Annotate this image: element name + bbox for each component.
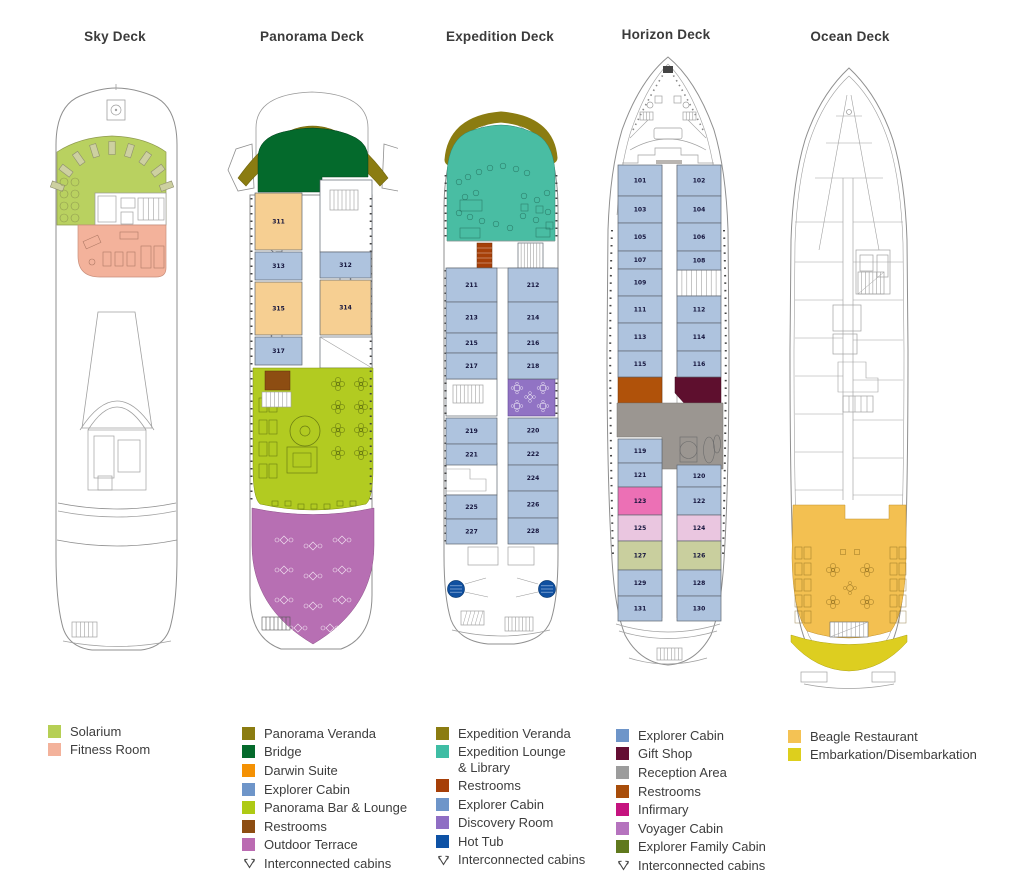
legend-item-bridge: Bridge bbox=[242, 743, 407, 762]
svg-text:120: 120 bbox=[693, 473, 706, 480]
sky-deck-plan bbox=[48, 84, 182, 660]
svg-text:127: 127 bbox=[634, 553, 647, 560]
legend-item-interconnected-cabins: Interconnected cabins bbox=[616, 856, 766, 875]
legend-swatch bbox=[48, 725, 61, 738]
svg-text:112: 112 bbox=[693, 307, 706, 314]
svg-text:108: 108 bbox=[693, 258, 706, 265]
cabin-107: 107 bbox=[618, 251, 662, 269]
cabin-111: 111 bbox=[618, 296, 662, 323]
ocean-deck-plan bbox=[784, 60, 916, 690]
legend-label: Voyager Cabin bbox=[638, 821, 723, 836]
svg-text:115: 115 bbox=[634, 361, 647, 368]
deck-title-panorama: Panorama Deck bbox=[226, 29, 398, 44]
svg-text:109: 109 bbox=[634, 280, 647, 287]
legend-item-restrooms: Restrooms bbox=[436, 776, 585, 795]
legend-label: Infirmary bbox=[638, 802, 689, 817]
svg-text:130: 130 bbox=[693, 606, 706, 613]
expedition-deck-plan: 2112132152172192212252272122142162182202… bbox=[438, 108, 562, 650]
cabin-115: 115 bbox=[618, 351, 662, 377]
cabin-221: 221 bbox=[446, 444, 497, 465]
sky-deck bbox=[50, 84, 177, 650]
svg-text:216: 216 bbox=[527, 340, 540, 347]
cabin-315: 315 bbox=[255, 282, 302, 335]
legend-item-discovery-room: Discovery Room bbox=[436, 813, 585, 832]
legend-swatch bbox=[242, 783, 255, 796]
cabin-219: 219 bbox=[446, 418, 497, 444]
legend-label: Hot Tub bbox=[458, 834, 504, 849]
svg-text:213: 213 bbox=[465, 315, 478, 322]
legend-swatch bbox=[616, 785, 629, 798]
cabin-217: 217 bbox=[446, 353, 497, 379]
cabin-102: 102 bbox=[677, 165, 721, 196]
region-gift-shop bbox=[675, 377, 721, 403]
svg-text:105: 105 bbox=[634, 234, 647, 241]
cabin-130: 130 bbox=[677, 596, 721, 621]
cabin-215: 215 bbox=[446, 333, 497, 353]
cabin-226: 226 bbox=[508, 491, 558, 518]
cabin-312: 312 bbox=[320, 252, 371, 278]
legend-swatch bbox=[436, 745, 449, 758]
cabin-211: 211 bbox=[446, 268, 497, 302]
legend-label: Expedition Veranda bbox=[458, 726, 571, 741]
cabin-108: 108 bbox=[677, 251, 721, 270]
svg-text:215: 215 bbox=[465, 340, 478, 347]
legend-swatch bbox=[616, 803, 629, 816]
cabin-104: 104 bbox=[677, 196, 721, 223]
legend-label: Embarkation/Disembarkation bbox=[810, 747, 977, 762]
legend-item-solarium: Solarium bbox=[48, 722, 150, 741]
legend-label: Restrooms bbox=[264, 819, 327, 834]
ocean-deck bbox=[790, 68, 908, 689]
legend-swatch bbox=[616, 729, 629, 742]
legend-swatch bbox=[242, 820, 255, 833]
legend-swatch bbox=[436, 779, 449, 792]
region-discovery-room bbox=[508, 379, 555, 416]
cabin-129: 129 bbox=[618, 570, 662, 596]
svg-text:122: 122 bbox=[693, 498, 706, 505]
panorama-deck-plan: 311313315317312314 bbox=[226, 86, 398, 660]
legend-swatch bbox=[788, 730, 801, 743]
deck-plan-canvas: Sky Deck Panorama Deck Expedition Deck H… bbox=[0, 0, 1018, 889]
svg-text:224: 224 bbox=[527, 475, 540, 482]
cabin-311: 311 bbox=[255, 193, 302, 250]
legend-item-infirmary: Infirmary bbox=[616, 800, 766, 819]
legend-sky-deck: SolariumFitness Room bbox=[48, 722, 150, 759]
svg-text:106: 106 bbox=[693, 234, 706, 241]
svg-text:218: 218 bbox=[527, 363, 540, 370]
cabin-225: 225 bbox=[446, 495, 497, 519]
legend-swatch bbox=[48, 743, 61, 756]
svg-text:103: 103 bbox=[634, 207, 647, 214]
svg-text:313: 313 bbox=[272, 263, 285, 270]
svg-text:129: 129 bbox=[634, 580, 647, 587]
cabin-313: 313 bbox=[255, 252, 302, 280]
svg-text:228: 228 bbox=[527, 528, 540, 535]
legend-label: Explorer Family Cabin bbox=[638, 839, 766, 854]
legend-swatch bbox=[616, 766, 629, 779]
legend-swatch bbox=[788, 748, 801, 761]
legend-item-gift-shop: Gift Shop bbox=[616, 745, 766, 764]
svg-text:217: 217 bbox=[465, 363, 478, 370]
legend-label: Beagle Restaurant bbox=[810, 729, 918, 744]
legend-item-reception-area: Reception Area bbox=[616, 763, 766, 782]
legend-item-restrooms: Restrooms bbox=[242, 817, 407, 836]
deck-title-horizon: Horizon Deck bbox=[602, 27, 730, 42]
legend-swatch bbox=[242, 764, 255, 777]
svg-text:222: 222 bbox=[527, 451, 540, 458]
legend-label: Outdoor Terrace bbox=[264, 837, 358, 852]
svg-text:315: 315 bbox=[272, 306, 285, 313]
interconnect-icon bbox=[242, 856, 257, 870]
cabin-127: 127 bbox=[618, 541, 662, 570]
legend-swatch bbox=[616, 822, 629, 835]
region-beagle-restaurant bbox=[792, 505, 906, 638]
legend-swatch bbox=[616, 747, 629, 760]
interconnect-icon bbox=[436, 853, 451, 867]
svg-text:317: 317 bbox=[272, 348, 285, 355]
legend-label: Interconnected cabins bbox=[458, 852, 585, 867]
legend-item-explorer-cabin: Explorer Cabin bbox=[616, 726, 766, 745]
legend-swatch bbox=[436, 727, 449, 740]
expedition-deck bbox=[444, 115, 558, 644]
legend-swatch bbox=[242, 727, 255, 740]
cabin-103: 103 bbox=[618, 196, 662, 223]
cabin-119: 119 bbox=[618, 439, 662, 463]
cabin-227: 227 bbox=[446, 519, 497, 544]
svg-text:121: 121 bbox=[634, 472, 647, 479]
legend-label: Restrooms bbox=[458, 778, 521, 793]
cabin-220: 220 bbox=[508, 418, 558, 443]
legend-item-panorama-bar-lounge: Panorama Bar & Lounge bbox=[242, 798, 407, 817]
legend-label: Explorer Cabin bbox=[638, 728, 724, 743]
svg-text:219: 219 bbox=[465, 428, 478, 435]
svg-text:314: 314 bbox=[339, 305, 352, 312]
svg-text:101: 101 bbox=[634, 178, 647, 185]
svg-text:116: 116 bbox=[693, 361, 706, 368]
svg-text:124: 124 bbox=[693, 525, 706, 532]
region-solarium bbox=[50, 136, 173, 225]
legend-label: Restrooms bbox=[638, 784, 701, 799]
legend-label: Gift Shop bbox=[638, 746, 692, 761]
svg-text:311: 311 bbox=[272, 219, 285, 226]
cabin-121: 121 bbox=[618, 463, 662, 487]
svg-text:104: 104 bbox=[693, 207, 706, 214]
legend-item-explorer-family-cabin: Explorer Family Cabin bbox=[616, 838, 766, 857]
svg-text:131: 131 bbox=[634, 606, 647, 613]
legend-item-restrooms: Restrooms bbox=[616, 782, 766, 801]
legend-item-expedition-veranda: Expedition Veranda bbox=[436, 724, 585, 743]
legend-label: Expedition Lounge bbox=[458, 744, 566, 759]
legend-swatch bbox=[616, 840, 629, 853]
legend-label: Darwin Suite bbox=[264, 763, 338, 778]
legend-swatch bbox=[436, 798, 449, 811]
svg-text:225: 225 bbox=[465, 504, 478, 511]
svg-text:119: 119 bbox=[634, 448, 647, 455]
legend-swatch bbox=[436, 816, 449, 829]
legend-label: Fitness Room bbox=[70, 742, 150, 757]
cabin-128: 128 bbox=[677, 570, 721, 596]
region-restrooms bbox=[477, 243, 492, 268]
region-restrooms bbox=[618, 377, 662, 403]
cabin-106: 106 bbox=[677, 223, 721, 251]
legend-expedition-deck: Expedition VerandaExpedition Lounge& Lib… bbox=[436, 724, 585, 869]
cabin-317: 317 bbox=[255, 337, 302, 365]
cabin-212: 212 bbox=[508, 268, 558, 302]
legend-label: Solarium bbox=[70, 724, 121, 739]
legend-label: Bridge bbox=[264, 744, 302, 759]
svg-text:312: 312 bbox=[339, 262, 352, 269]
legend-item-hot-tub: Hot Tub bbox=[436, 832, 585, 851]
svg-text:212: 212 bbox=[527, 282, 540, 289]
legend-item-panorama-veranda: Panorama Veranda bbox=[242, 724, 407, 743]
legend-item-voyager-cabin: Voyager Cabin bbox=[616, 819, 766, 838]
cabin-125: 125 bbox=[618, 515, 662, 541]
svg-text:128: 128 bbox=[693, 580, 706, 587]
legend-swatch bbox=[242, 801, 255, 814]
legend-item-beagle-restaurant: Beagle Restaurant bbox=[788, 727, 977, 746]
cabin-112: 112 bbox=[677, 296, 721, 323]
legend-label: Reception Area bbox=[638, 765, 727, 780]
horizon-deck-plan: 1011031051071091111131151191211231251271… bbox=[602, 50, 730, 680]
deck-title-expedition: Expedition Deck bbox=[438, 29, 562, 44]
cabin-122: 122 bbox=[677, 487, 721, 515]
legend-swatch bbox=[242, 838, 255, 851]
legend-swatch bbox=[242, 745, 255, 758]
cabin-228: 228 bbox=[508, 518, 558, 544]
svg-text:125: 125 bbox=[634, 525, 647, 532]
legend-item-explorer-cabin: Explorer Cabin bbox=[242, 780, 407, 799]
cabin-114: 114 bbox=[677, 323, 721, 351]
legend-panorama-deck: Panorama VerandaBridgeDarwin SuiteExplor… bbox=[242, 724, 407, 873]
svg-text:123: 123 bbox=[634, 498, 647, 505]
cabin-216: 216 bbox=[508, 333, 558, 353]
cabin-120: 120 bbox=[677, 465, 721, 487]
svg-text:227: 227 bbox=[465, 529, 478, 536]
svg-text:211: 211 bbox=[465, 282, 478, 289]
cabin-224: 224 bbox=[508, 465, 558, 491]
svg-text:111: 111 bbox=[634, 307, 647, 314]
legend-item-explorer-cabin: Explorer Cabin bbox=[436, 795, 585, 814]
cabin-222: 222 bbox=[508, 443, 558, 465]
svg-text:126: 126 bbox=[693, 553, 706, 560]
svg-text:114: 114 bbox=[693, 334, 706, 341]
deck-title-sky: Sky Deck bbox=[48, 29, 182, 44]
cabin-126: 126 bbox=[677, 541, 721, 570]
cabin-314: 314 bbox=[320, 280, 371, 335]
legend-label: Panorama Bar & Lounge bbox=[264, 800, 407, 815]
legend-item-darwin-suite: Darwin Suite bbox=[242, 761, 407, 780]
cabin-105: 105 bbox=[618, 223, 662, 251]
svg-text:220: 220 bbox=[527, 428, 540, 435]
legend-label: Explorer Cabin bbox=[458, 797, 544, 812]
legend-ocean-deck: Beagle RestaurantEmbarkation/Disembarkat… bbox=[788, 727, 977, 764]
cabin-101: 101 bbox=[618, 165, 662, 196]
legend-label: Discovery Room bbox=[458, 815, 553, 830]
legend-label: Panorama Veranda bbox=[264, 726, 376, 741]
legend-item-expedition-lounge: Expedition Lounge bbox=[436, 743, 585, 762]
svg-text:226: 226 bbox=[527, 502, 540, 509]
legend-swatch bbox=[436, 835, 449, 848]
panorama-deck bbox=[228, 92, 398, 649]
svg-text:221: 221 bbox=[465, 452, 478, 459]
cabin-124: 124 bbox=[677, 515, 721, 541]
cabin-131: 131 bbox=[618, 596, 662, 621]
interconnect-icon bbox=[616, 858, 631, 872]
legend-item-interconnected-cabins: Interconnected cabins bbox=[436, 851, 585, 870]
legend-item-interconnected-cabins: Interconnected cabins bbox=[242, 854, 407, 873]
svg-text:113: 113 bbox=[634, 334, 647, 341]
region-fitness-room bbox=[78, 225, 166, 277]
legend-item-embarkation-disembarkation: Embarkation/Disembarkation bbox=[788, 746, 977, 765]
sun-lounger bbox=[109, 142, 115, 155]
svg-text:107: 107 bbox=[634, 257, 647, 264]
cabin-109: 109 bbox=[618, 269, 662, 296]
legend-label-line2: & Library bbox=[458, 761, 585, 776]
cabin-213: 213 bbox=[446, 302, 497, 333]
svg-text:102: 102 bbox=[693, 178, 706, 185]
cabin-113: 113 bbox=[618, 323, 662, 351]
cabin-218: 218 bbox=[508, 353, 558, 379]
legend-label: Interconnected cabins bbox=[638, 858, 765, 873]
region-restrooms bbox=[265, 371, 290, 390]
cabin-214: 214 bbox=[508, 302, 558, 333]
deck-title-ocean: Ocean Deck bbox=[784, 29, 916, 44]
legend-label: Interconnected cabins bbox=[264, 856, 391, 871]
cabin-116: 116 bbox=[677, 351, 721, 377]
svg-text:214: 214 bbox=[527, 315, 540, 322]
legend-item-fitness-room: Fitness Room bbox=[48, 741, 150, 760]
legend-horizon-deck: Explorer CabinGift ShopReception AreaRes… bbox=[616, 726, 766, 875]
cabin-123: 123 bbox=[618, 487, 662, 515]
legend-label: Explorer Cabin bbox=[264, 782, 350, 797]
legend-item-outdoor-terrace: Outdoor Terrace bbox=[242, 836, 407, 855]
region-expedition-lounge bbox=[447, 125, 555, 241]
